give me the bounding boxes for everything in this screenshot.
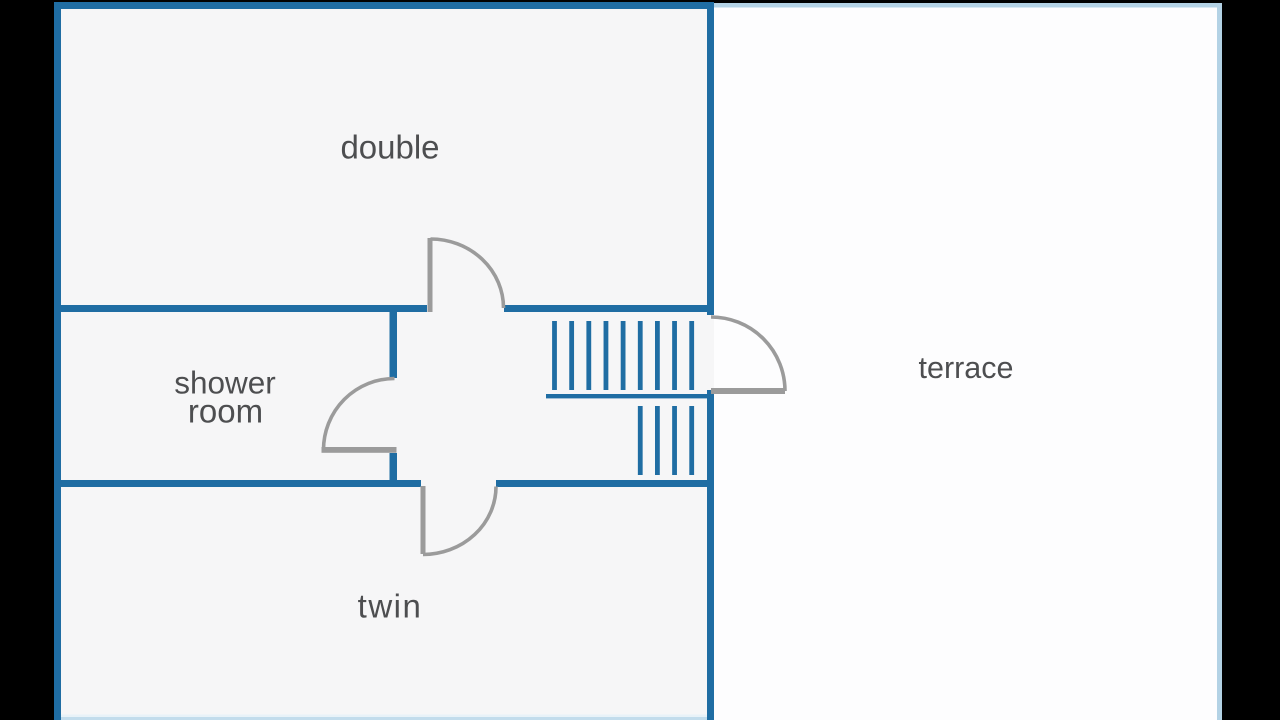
svg-text:twin: twin — [358, 588, 423, 625]
svg-text:terrace: terrace — [919, 351, 1014, 385]
svg-text:double: double — [340, 129, 439, 166]
svg-text:room: room — [188, 393, 263, 430]
